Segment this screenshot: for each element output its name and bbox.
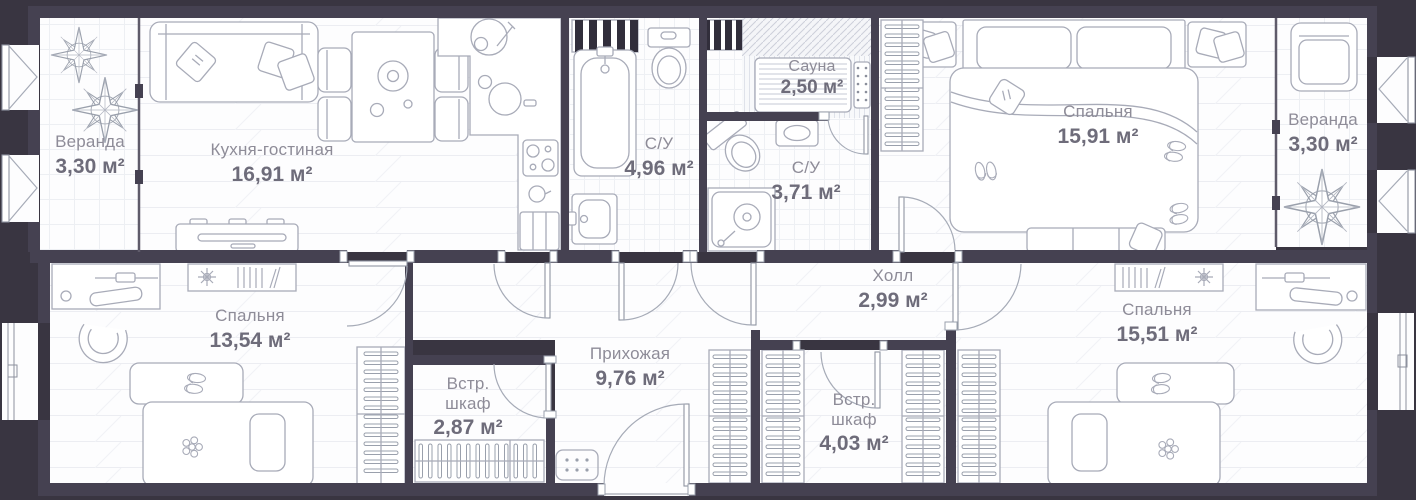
- door-swing-icon: [1377, 170, 1415, 233]
- washbasin-icon: [568, 194, 617, 244]
- wardrobe-rack-icon: [958, 350, 1000, 483]
- armchair-icon: [1291, 23, 1357, 91]
- wardrobe-rack-icon: [357, 347, 405, 485]
- sauna-bench-icon: [755, 58, 851, 112]
- window-icon: [1378, 313, 1414, 410]
- tv-stand-icon: [176, 219, 298, 252]
- wardrobe-rack-icon: [709, 350, 751, 483]
- window-icon: [2, 323, 38, 420]
- nightstand-icon: [1188, 22, 1246, 67]
- door-swing-icon: [2, 155, 39, 222]
- sauna-heater-icon: [854, 62, 870, 108]
- bookshelf-icon: [1115, 264, 1223, 291]
- desk-icon: [52, 264, 160, 309]
- shower-icon: [708, 188, 775, 251]
- toilet-icon: [648, 28, 690, 88]
- floor-plan-drawing: [0, 0, 1416, 500]
- desk-icon: [1256, 264, 1366, 310]
- bathtub-icon: [574, 47, 636, 176]
- door-swing-icon: [2, 45, 39, 110]
- closet-1-furniture: [415, 440, 544, 482]
- double-bed-icon: [950, 20, 1198, 232]
- floor-plan-page: Веранда 3,30 м² Кухня-гостиная 16,91 м² …: [0, 0, 1416, 500]
- door-swing-icon: [1377, 57, 1415, 123]
- wardrobe-rack-icon: [881, 20, 923, 151]
- sofa-icon: [150, 22, 318, 102]
- bookshelf-icon: [188, 264, 296, 291]
